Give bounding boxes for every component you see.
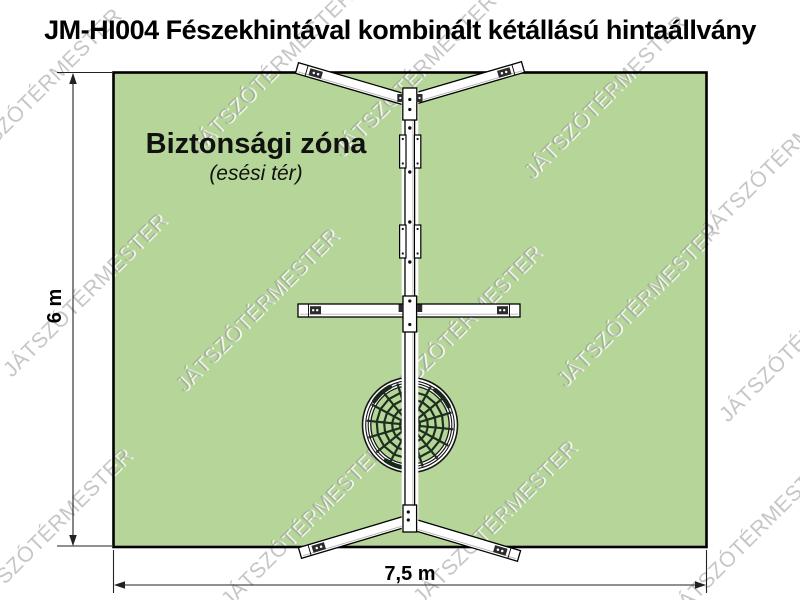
- svg-text:JÁTSZÓTÉRMESTER: JÁTSZÓTÉRMESTER: [696, 68, 800, 242]
- arrow-left-icon: [114, 581, 125, 589]
- svg-text:JÁTSZÓTÉRMESTER: JÁTSZÓTÉRMESTER: [714, 253, 800, 427]
- site-plan-drawing: JÁTSZÓTÉRMESTERJÁTSZÓTÉRMESTER JÁTSZÓTÉR…: [0, 0, 800, 600]
- height-dimension-label: 6 m: [44, 289, 66, 323]
- diagram-page: JM-HI004 Fészekhintával kombinált kétáll…: [0, 0, 800, 600]
- width-dimension-label: 7,5 m: [384, 563, 435, 585]
- safety-zone-sublabel: (esési tér): [108, 161, 404, 186]
- watermark-text: JÁTSZÓTÉRMESTERJÁTSZÓTÉRMESTER: [714, 252, 800, 428]
- beam-bracket-bottom: [403, 505, 417, 532]
- safety-zone-label: Biztonsági zóna: [108, 127, 404, 161]
- page-title: JM-HI004 Fészekhintával kombinált kétáll…: [0, 15, 800, 46]
- bar-end-plate-left: [310, 306, 321, 314]
- safety-zone-label-block: Biztonsági zóna (esési tér): [108, 127, 404, 186]
- watermark-text: JÁTSZÓTÉRMESTERJÁTSZÓTÉRMESTER: [696, 67, 800, 243]
- bar-end-plate-right: [497, 306, 508, 314]
- arrow-down-icon: [69, 535, 77, 546]
